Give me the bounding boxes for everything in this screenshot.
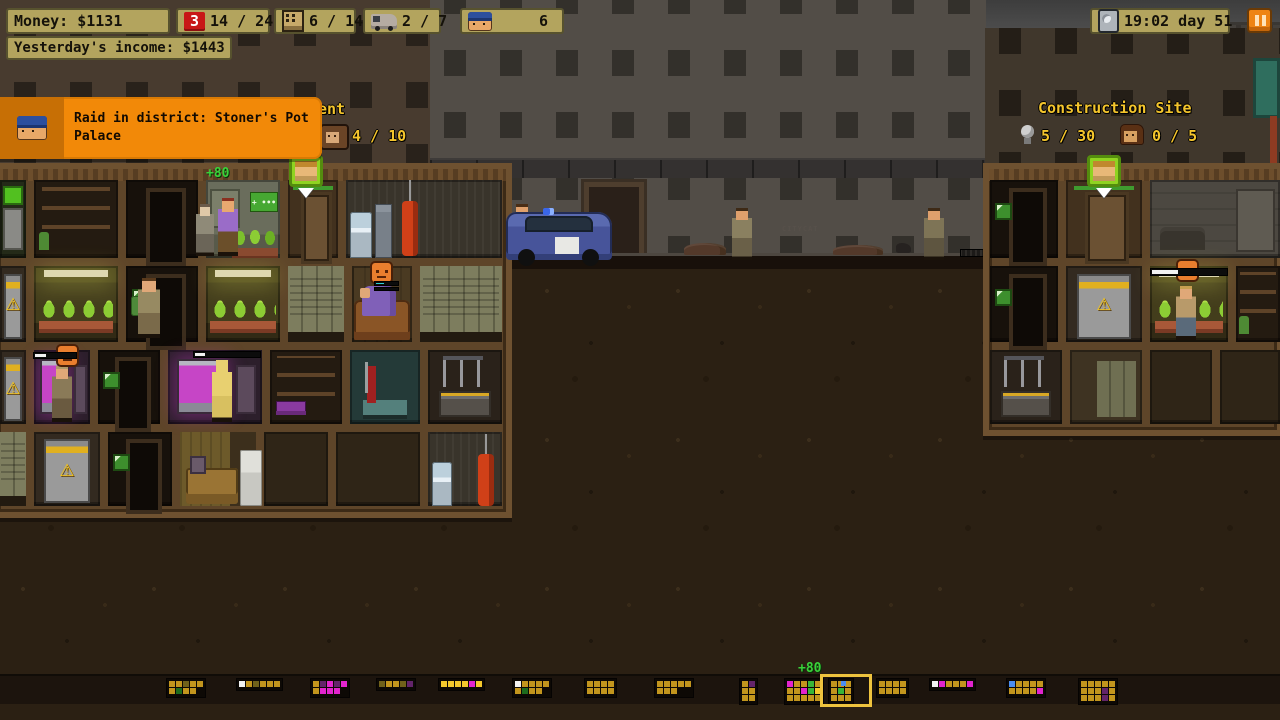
police-count-label: 6 [539,14,548,29]
construction-materials-label: 5 / 30 [1041,128,1095,145]
progress-bar [1150,268,1228,276]
buildings-ratio-label: 6 / 14 [309,14,363,29]
need-bar [374,287,399,291]
room-vending[interactable] [0,180,26,258]
rubble [833,245,883,255]
apartment-tenants-label: 4 / 10 [352,128,406,145]
lab-worker [52,366,72,422]
fence [430,158,986,178]
room-income-floater: +80 [206,166,266,180]
room-lockers[interactable] [0,432,26,506]
room-dark[interactable] [126,180,198,258]
room-shelves[interactable] [1236,266,1280,342]
police-panel[interactable]: 6 [460,8,564,34]
punchbag [400,180,420,256]
police-icon [468,12,492,31]
worker-icon [1120,124,1144,145]
room-shelves[interactable] [34,180,118,258]
room-lockers[interactable] [288,266,344,342]
buildings-panel[interactable]: 6 / 14 [274,8,356,34]
room-grow[interactable] [34,266,118,342]
money-panel: Money: $1131 [6,8,170,34]
carrier [138,278,160,338]
room-empty[interactable] [264,432,328,506]
mapband [0,674,1280,704]
room-lockwood[interactable] [1070,350,1142,424]
construction-site-title: Construction Site [1038,100,1192,117]
notification-text: Raid in district: Stoner's Pot Palace [64,97,322,159]
raid-alert-badge: 3 [184,12,205,31]
tenant-icon [320,124,349,150]
cat [896,243,911,253]
raid-notification[interactable]: Raid in district: Stoner's Pot Palace [0,97,322,159]
cooler [432,462,452,506]
room-empty[interactable] [1150,350,1212,424]
raid-ratio-label: 14 / 24 [210,14,273,29]
room-dark[interactable] [98,350,160,424]
fridge [240,450,262,506]
minimap-marker [841,681,846,686]
room-empty[interactable] [336,432,420,506]
selected-character-badge[interactable] [1087,155,1121,187]
room-workshop[interactable] [428,350,502,424]
grow-worker [1176,286,1196,340]
room-warehouse[interactable] [1150,180,1280,258]
clock-icon [1098,9,1119,33]
material-icon [1020,125,1035,145]
income-panel: Yesterday's income: $1443 [6,36,232,60]
dealer-purple [218,198,238,256]
progress-bar [33,352,77,359]
room-dark[interactable] [108,432,172,506]
room-shelfpurple[interactable] [270,350,342,424]
tenant-grey [196,204,214,256]
room-machine[interactable] [1066,266,1142,342]
minimap-income-floater: +80 [798,661,842,675]
cabinet [375,204,392,258]
game-stage: CITYCAT+80+80 Money: $1131 3 14 / 24 6 /… [0,0,1280,720]
room-machine[interactable] [0,350,26,424]
graffiti: CITYCAT [782,225,842,235]
room-medical[interactable] [350,350,420,424]
room-lockers[interactable] [420,266,502,342]
room-workshop[interactable] [990,350,1062,424]
building-icon [282,10,304,32]
money-label: Money: $1131 [14,14,122,29]
police-icon-box [0,97,64,159]
room-dark[interactable] [990,180,1058,258]
raid-capacity-panel[interactable]: 3 14 / 24 [176,8,270,34]
room-dark[interactable] [990,266,1058,342]
vans-panel[interactable]: 2 / 7 [363,8,441,34]
punchbag [476,434,496,506]
room-machine[interactable] [0,266,26,342]
need-bar [374,281,399,286]
pic [190,456,206,474]
construction-workers-label: 0 / 5 [1152,128,1197,145]
time-label: 19:02 day 51 [1124,14,1232,29]
room-grow[interactable] [206,266,280,342]
selected-character-badge[interactable] [289,155,323,187]
vans-ratio-label: 2 / 7 [402,14,447,29]
cooler [350,212,372,258]
clock-panel: 19:02 day 51 [1090,8,1230,34]
minimap-selection[interactable] [820,674,872,707]
police-car[interactable] [506,212,612,260]
van-icon [371,14,397,29]
apartment-label: ent [318,101,345,118]
pedestrian [924,208,944,260]
tealdoor [1253,58,1280,118]
plants3 [232,226,278,258]
police-icon [17,116,47,140]
grate [960,249,984,257]
pedestrian [732,208,752,260]
rubble [684,243,726,255]
pause-button[interactable] [1247,8,1272,33]
room-machine[interactable] [34,432,100,506]
siren [543,208,554,215]
undressed-tenant [212,360,232,422]
room-empty[interactable] [1220,350,1280,424]
income-label: Yesterday's income: $1443 [14,41,225,55]
progress-bar [193,351,261,358]
